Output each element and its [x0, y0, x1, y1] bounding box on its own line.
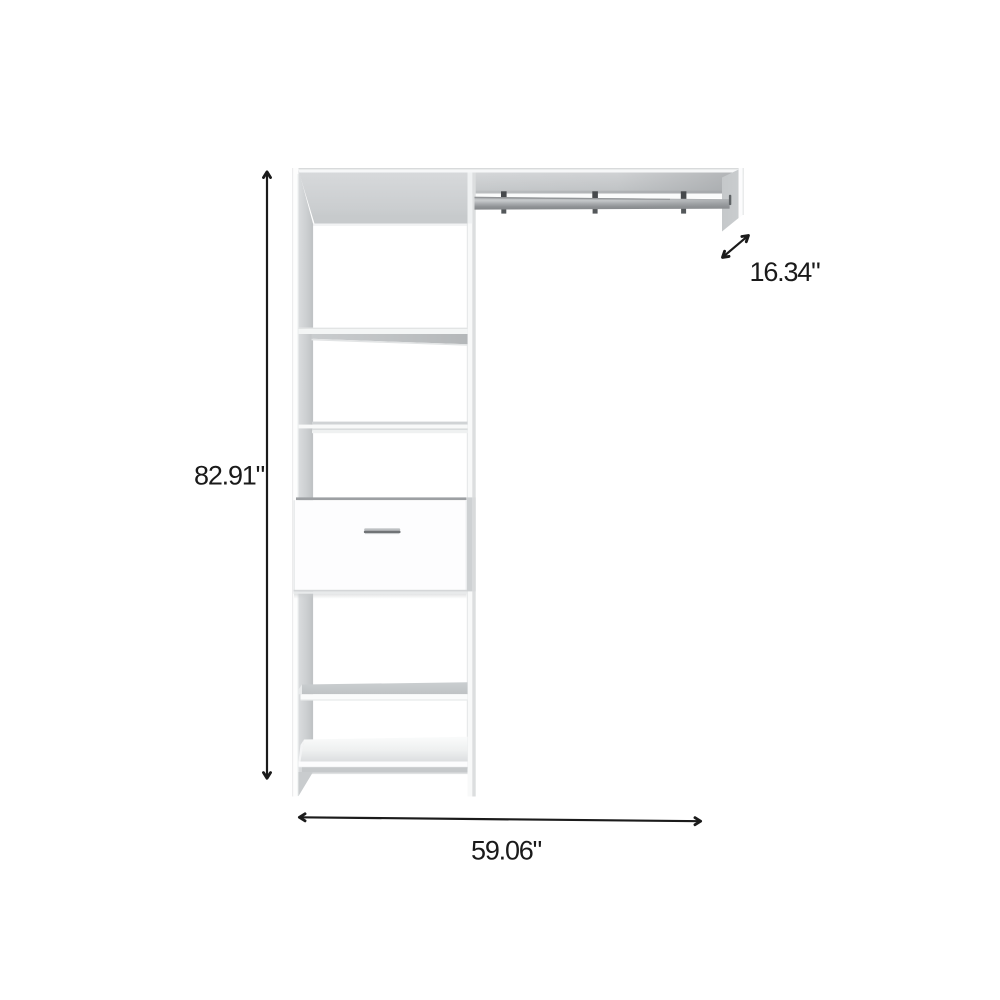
svg-text:16.34": 16.34"	[750, 257, 821, 287]
svg-text:59.06": 59.06"	[471, 836, 542, 866]
svg-text:82.91": 82.91"	[194, 461, 265, 491]
